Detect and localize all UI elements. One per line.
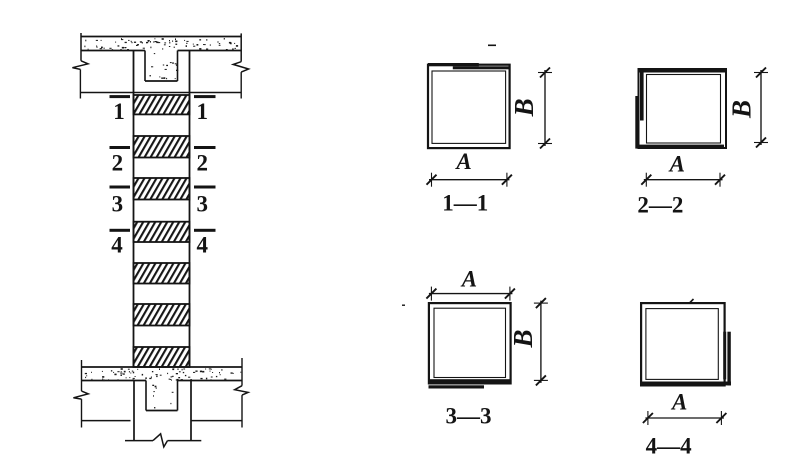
svg-text:4—4: 4—4 bbox=[646, 433, 693, 458]
svg-text:3: 3 bbox=[112, 192, 124, 217]
svg-text:1—1: 1—1 bbox=[442, 190, 488, 215]
svg-text:B: B bbox=[508, 329, 538, 348]
svg-text:4: 4 bbox=[197, 233, 209, 258]
svg-text:3—3: 3—3 bbox=[446, 403, 492, 428]
svg-text:2: 2 bbox=[197, 151, 209, 176]
svg-text:1: 1 bbox=[113, 99, 125, 124]
svg-text:2—2: 2—2 bbox=[637, 193, 683, 218]
svg-text:3: 3 bbox=[197, 192, 209, 217]
svg-text:1: 1 bbox=[197, 99, 209, 124]
svg-text:2: 2 bbox=[112, 151, 124, 176]
svg-text:A: A bbox=[454, 149, 471, 174]
svg-text:4: 4 bbox=[111, 233, 123, 258]
svg-text:B: B bbox=[509, 98, 539, 117]
svg-text:A: A bbox=[668, 152, 685, 177]
svg-text:A: A bbox=[460, 267, 477, 292]
svg-text:A: A bbox=[670, 390, 687, 415]
svg-text:B: B bbox=[727, 100, 757, 119]
